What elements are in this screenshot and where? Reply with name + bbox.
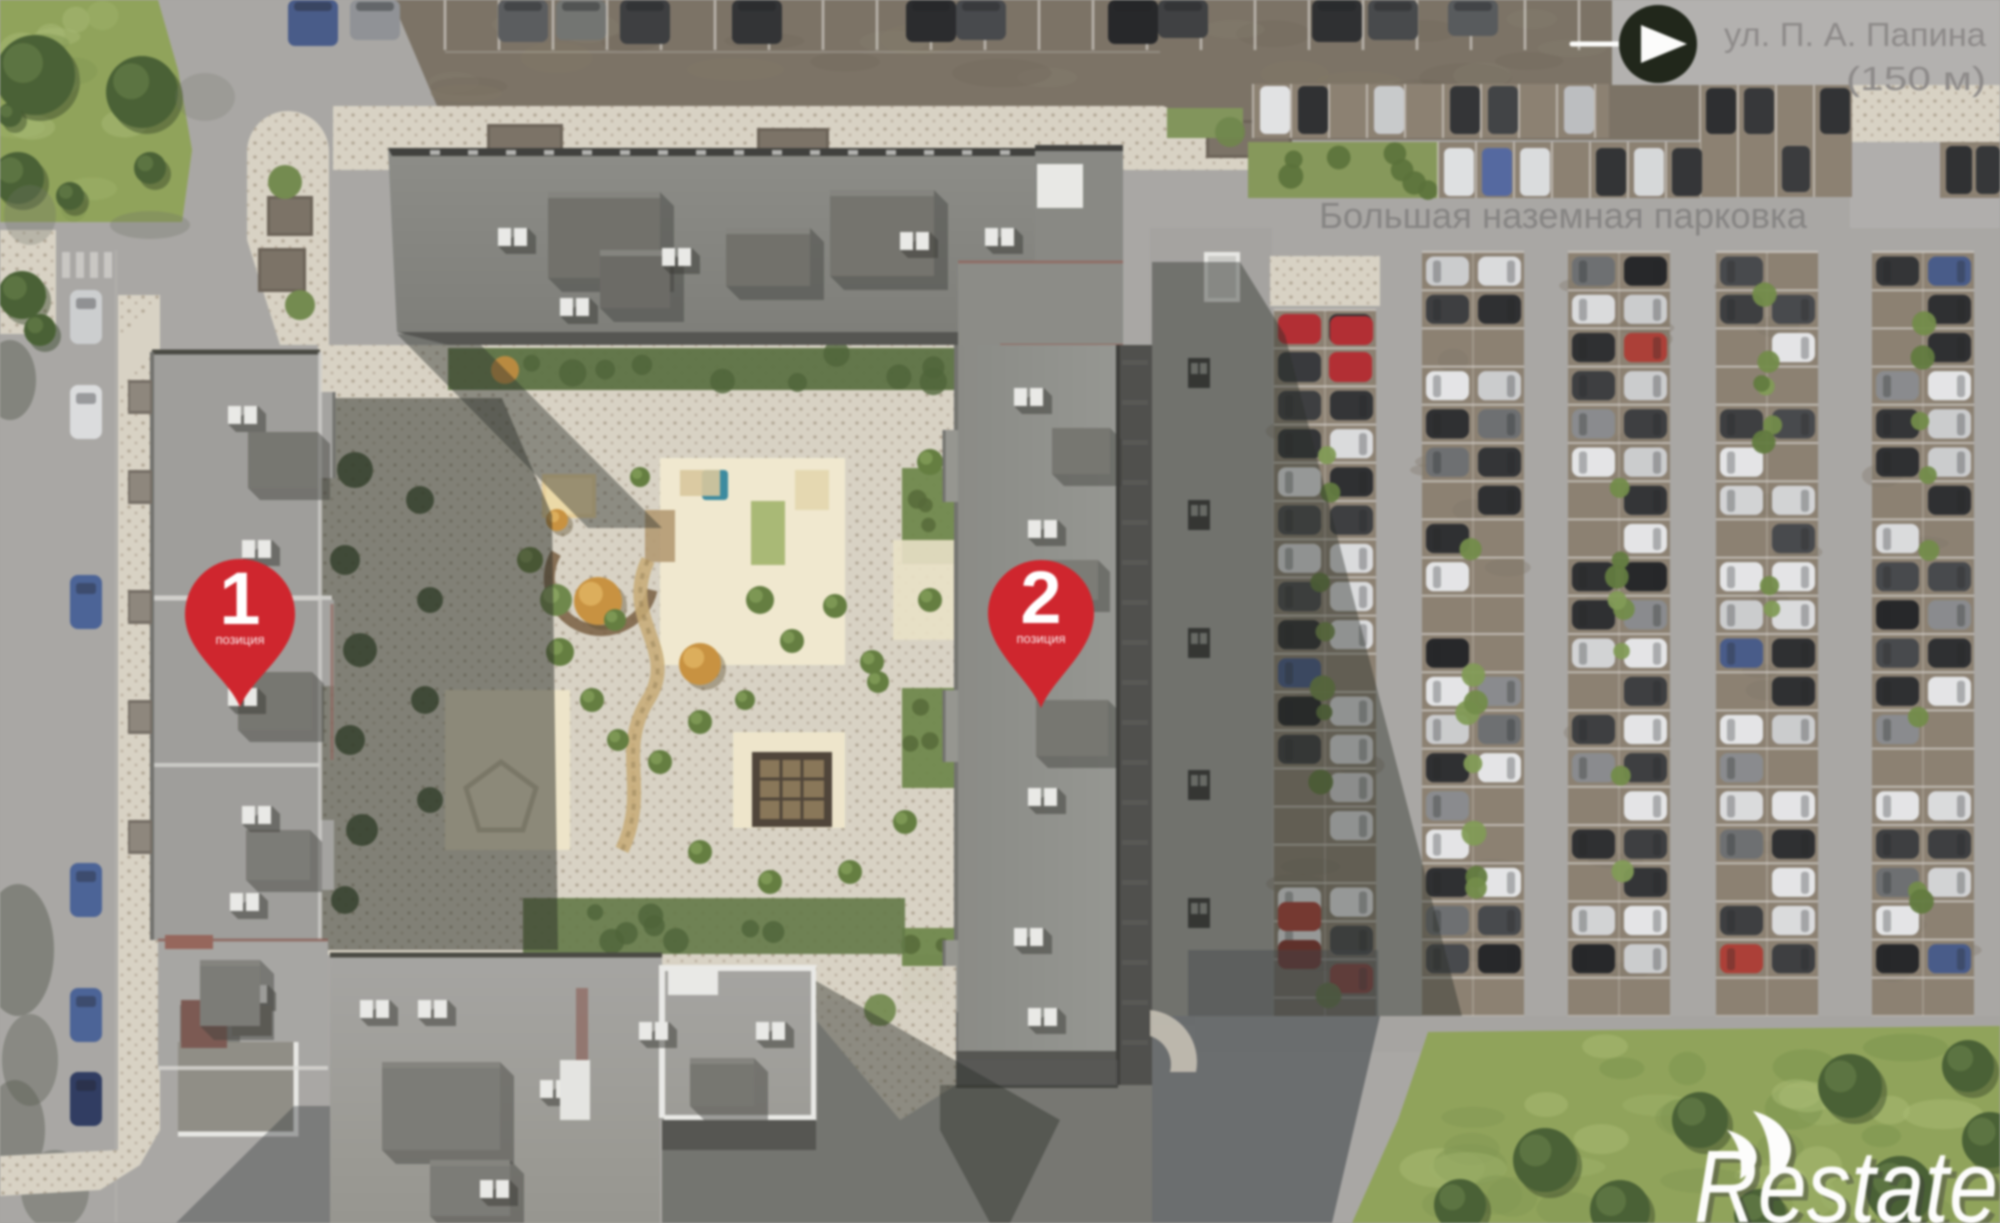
svg-text:позиция: позиция bbox=[1016, 631, 1065, 646]
svg-text:1: 1 bbox=[219, 557, 260, 640]
svg-text:Restate: Restate bbox=[1694, 1129, 1998, 1223]
svg-text:ул. П. А. Папина: ул. П. А. Папина bbox=[1724, 16, 1987, 53]
svg-text:2: 2 bbox=[1020, 556, 1061, 639]
svg-text:Большая наземная парковка: Большая наземная парковка bbox=[1319, 195, 1808, 236]
svg-text:(150 м): (150 м) bbox=[1846, 60, 1986, 97]
svg-text:позиция: позиция bbox=[215, 632, 264, 647]
